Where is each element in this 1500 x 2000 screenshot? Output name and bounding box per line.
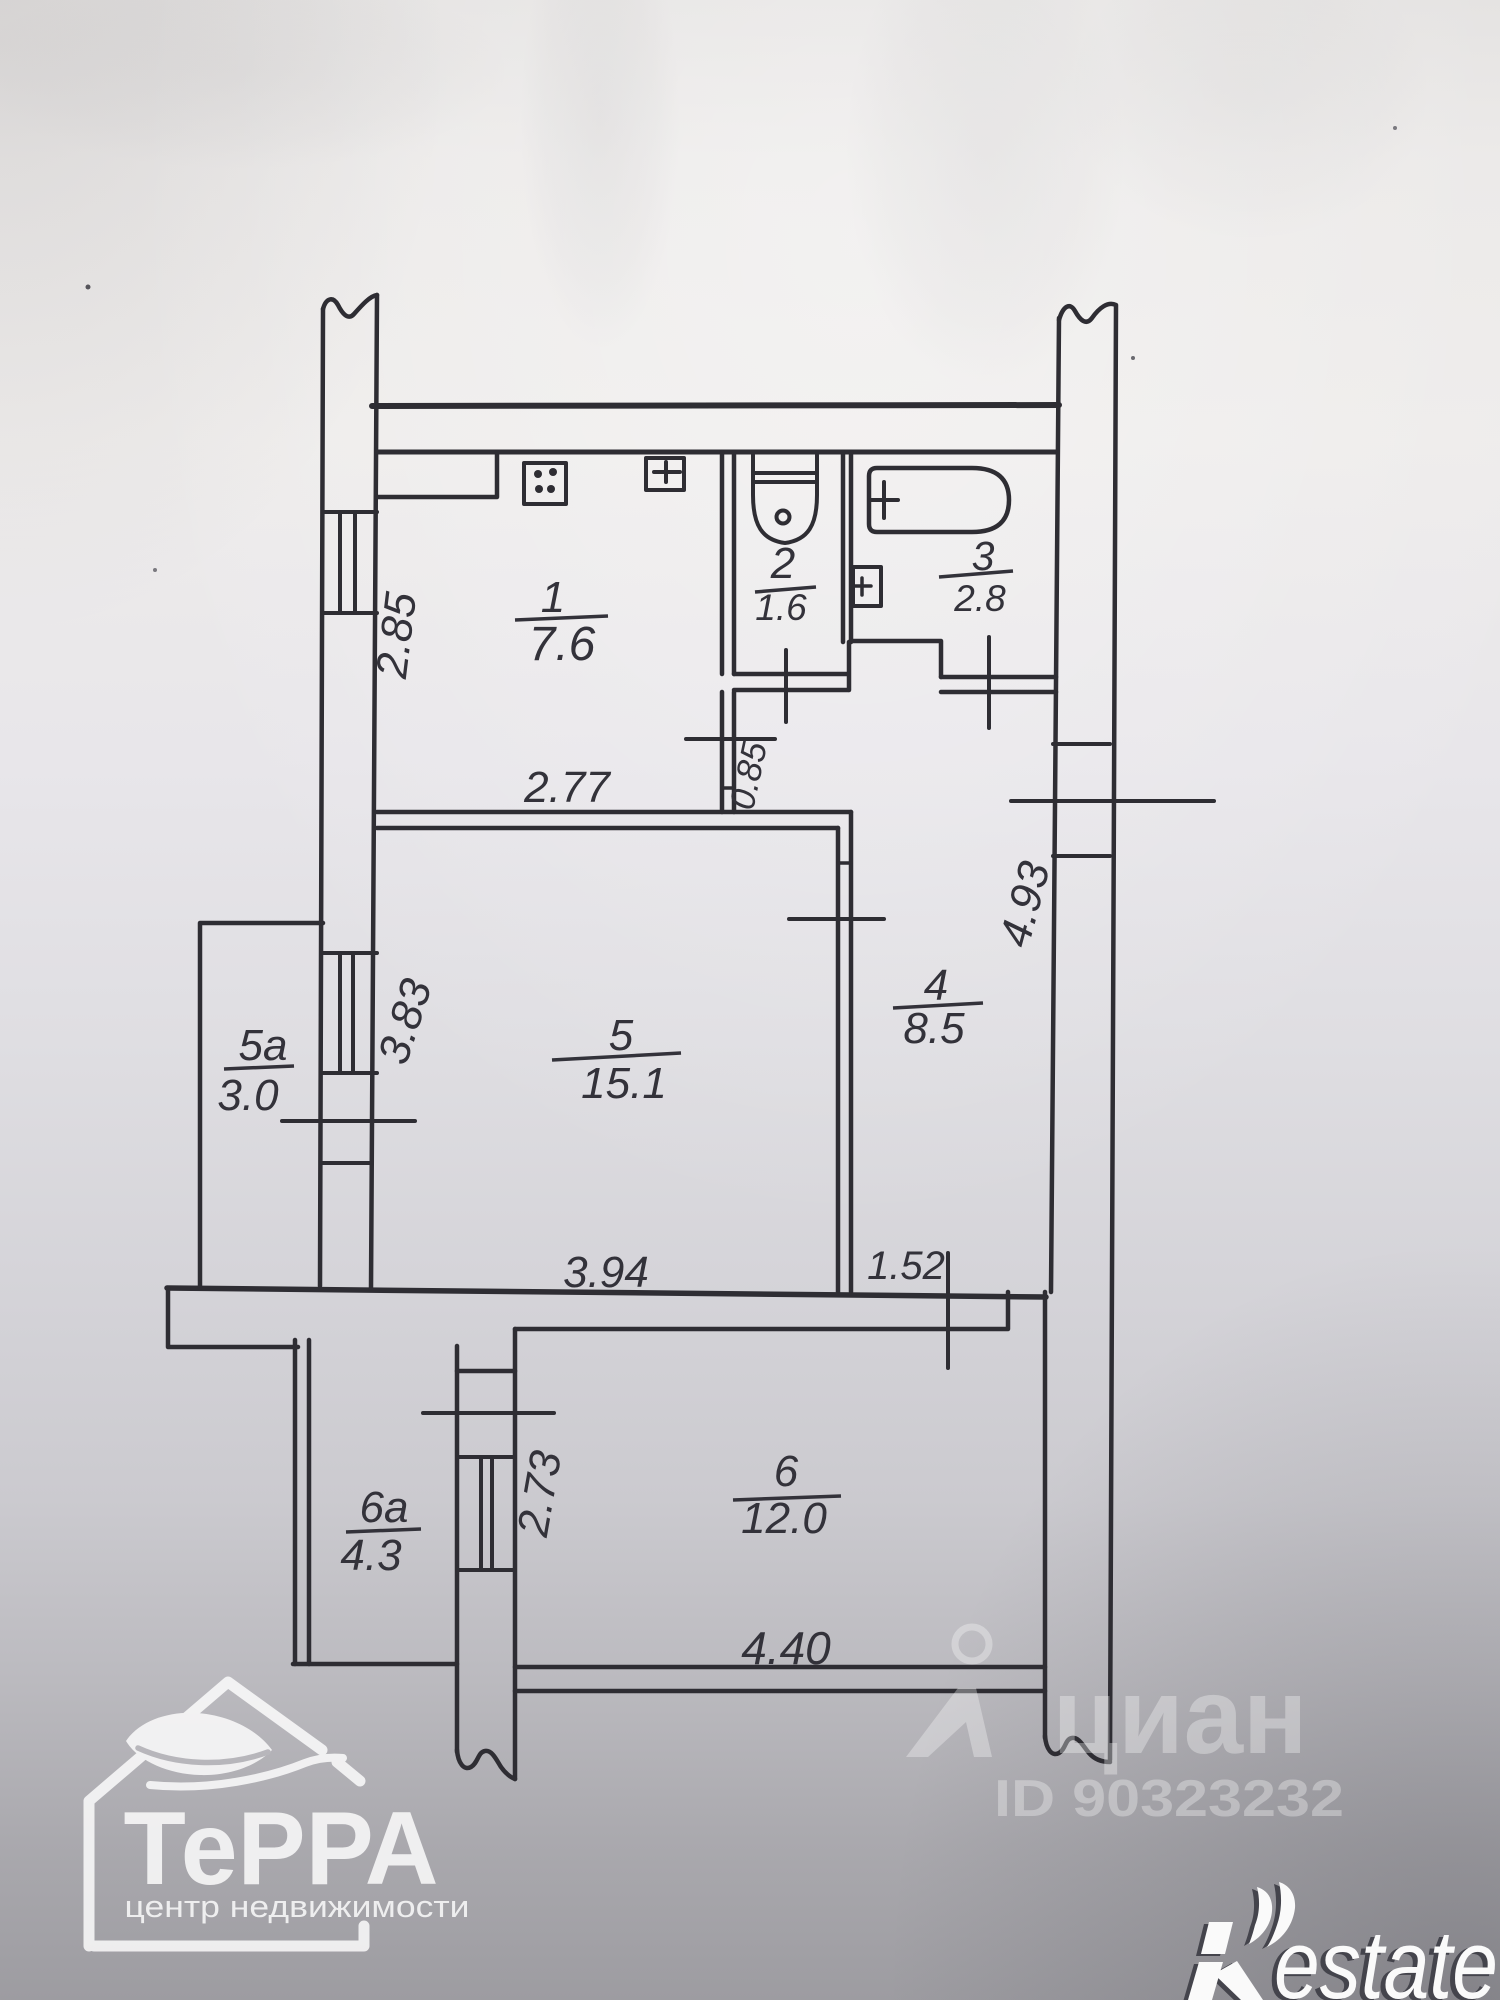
svg-text:5a: 5a: [239, 1021, 288, 1070]
svg-text:1.52: 1.52: [867, 1244, 945, 1288]
svg-text:2.77: 2.77: [523, 763, 611, 812]
svg-text:7.6: 7.6: [529, 618, 596, 671]
svg-text:центр недвижимости: центр недвижимости: [125, 1889, 470, 1924]
svg-text:1.6: 1.6: [755, 587, 807, 628]
svg-text:6a: 6a: [360, 1483, 409, 1532]
svg-text:2: 2: [770, 539, 795, 588]
svg-text:15.1: 15.1: [581, 1059, 667, 1108]
svg-text:estate: estate: [1274, 1910, 1498, 2000]
svg-text:2.8: 2.8: [953, 578, 1006, 619]
svg-text:3.94: 3.94: [563, 1248, 649, 1297]
svg-text:4: 4: [924, 961, 948, 1010]
svg-text:4.40: 4.40: [741, 1622, 831, 1674]
svg-text:циан: циан: [1053, 1655, 1308, 1776]
svg-text:1: 1: [541, 573, 565, 622]
svg-text:3.0: 3.0: [217, 1071, 279, 1120]
svg-text:ID 90323232: ID 90323232: [994, 1770, 1344, 1828]
svg-text:5: 5: [609, 1011, 634, 1060]
svg-text:12.0: 12.0: [741, 1494, 827, 1543]
svg-text:8.5: 8.5: [903, 1004, 965, 1053]
svg-text:6: 6: [774, 1447, 799, 1496]
svg-text:4.3: 4.3: [340, 1531, 402, 1580]
